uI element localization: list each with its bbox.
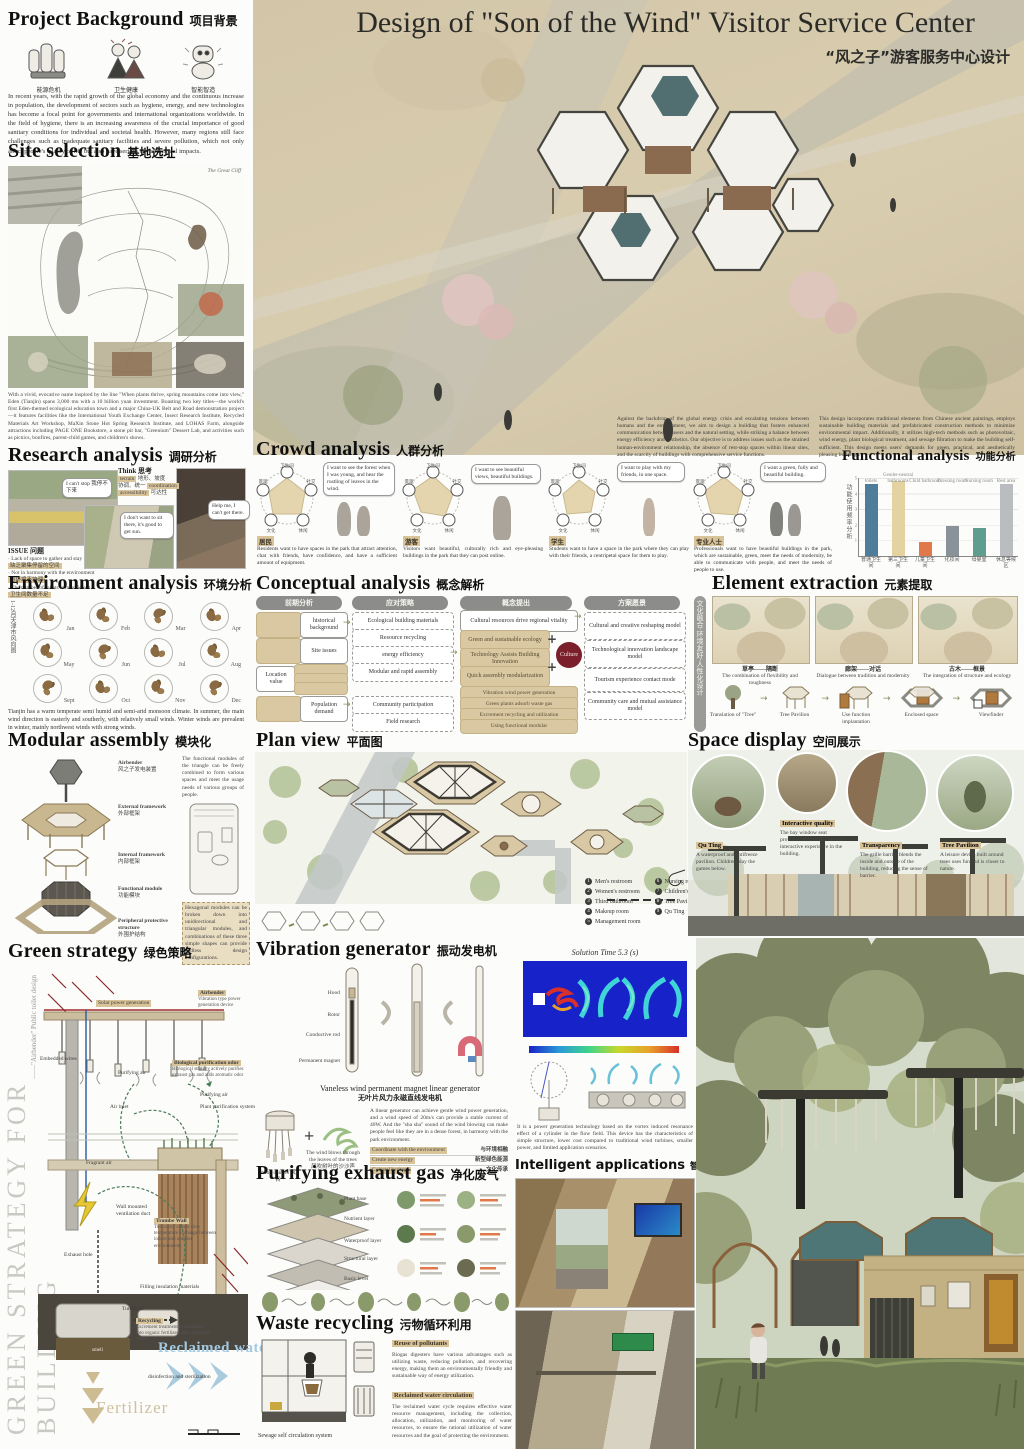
- purify-heading: Purifying exhaust gas净化废气: [256, 1162, 499, 1185]
- plan-heading: Plan view平面图: [256, 729, 383, 752]
- flow-box: Cultural resources drive regional vitali…: [460, 610, 578, 632]
- space-callout-transparency: TransparencyThe grille barrier blends th…: [860, 834, 930, 881]
- plus-sign: +: [547, 660, 557, 674]
- svg-text:文化: 文化: [704, 527, 713, 534]
- persona-tag: 学生: [549, 536, 566, 546]
- intelligent-photo-screen: [515, 1178, 695, 1308]
- wind-rose-mar: Mar: [131, 598, 187, 634]
- svg-text:+: +: [304, 1126, 314, 1146]
- think-keyword-accessibility: accessibility 可达性: [118, 490, 206, 497]
- heading-zh: 净化废气: [451, 1166, 499, 1183]
- wind-rose-oct: Oct: [76, 670, 132, 706]
- function-icon: [839, 684, 873, 710]
- environment-side-label: 1-12月天津市风向图: [8, 600, 17, 653]
- arrow-icon: →: [343, 618, 351, 628]
- legend-item: 5Management room: [585, 918, 641, 925]
- intelligent-photo-corridor: [515, 1310, 695, 1449]
- heading-zh: 污物循环利用: [400, 1316, 472, 1333]
- cfd-simulation-image: [523, 961, 687, 1037]
- element-steps: Translation of "Tree" → Tree Pavilion → …: [706, 684, 1022, 725]
- heading-en: Purifying exhaust gas: [256, 1162, 445, 1185]
- fa-bar: [865, 484, 878, 556]
- flow-box: Community care and mutual assistance mod…: [584, 692, 686, 720]
- arrow-icon: →: [760, 694, 768, 704]
- space-callout-circle-3: [846, 750, 928, 832]
- heading-en: Project Background: [8, 8, 184, 31]
- heading-zh: 功能分析: [976, 448, 1016, 463]
- arrow-icon: →: [343, 700, 351, 710]
- svg-text:文化: 文化: [559, 527, 568, 534]
- svg-text:景观: 景观: [696, 479, 705, 485]
- person-figure: [770, 502, 783, 536]
- green-section-drawing: [38, 964, 248, 1442]
- environment-heading: Environment analysis环境分析: [8, 572, 252, 595]
- modular-heading: Modular assembly模块化: [8, 729, 211, 752]
- green-label-fill: Filling insulation materials: [140, 1284, 199, 1291]
- waste-block-pollutants: Reuse of pollutants Biogas digesters hav…: [392, 1332, 512, 1381]
- flow-tan-box: Quick assembly modularization: [460, 666, 550, 687]
- research-bubble-2: I don't want to sit there, it's good to …: [120, 512, 174, 539]
- final-render: [696, 938, 1024, 1449]
- chart-y-ticks: 12345: [852, 478, 858, 556]
- heading-en: Research analysis: [8, 444, 163, 467]
- heading-zh: 模块化: [175, 733, 211, 750]
- sewage-diagram: [258, 1336, 378, 1428]
- svg-text:景观: 景观: [259, 479, 268, 485]
- site-body: With a vivid, evocative name inspired by…: [8, 392, 244, 442]
- viewfinder-icon: [968, 684, 1014, 710]
- painting-2: [815, 596, 913, 664]
- svg-text:休闲: 休闲: [299, 527, 308, 534]
- label-airbender: Airbender风之子发电装置: [118, 760, 157, 774]
- flow-col-header: 概念提出: [460, 596, 572, 610]
- space-callout-quting: Qu TingA waterproof and antifreeze pavil…: [696, 834, 766, 873]
- green-label-reclaimed: Reclaimed water: [158, 1340, 273, 1357]
- label-internal: Internal framework内部框架: [118, 852, 165, 866]
- legend-item: 3Third bathroom: [585, 898, 641, 905]
- label-peripheral: Peripheral protective structure外围护结构: [118, 918, 178, 939]
- heading-en: Plan view: [256, 729, 341, 752]
- svg-text:文化: 文化: [267, 527, 276, 534]
- persona-quote: I want a green, fully and beautiful buil…: [760, 462, 826, 482]
- svg-text:卫生间: 卫生间: [280, 462, 294, 469]
- issue-item: · Lack of space to gather and stay缺乏聚集停留…: [8, 556, 118, 570]
- green-label-purair2: Purifying air: [200, 1092, 228, 1099]
- tree-icon: [718, 684, 748, 710]
- svg-text:社交: 社交: [599, 478, 608, 485]
- svg-text:卫生间: 卫生间: [717, 462, 731, 469]
- heading-en: Waste recycling: [256, 1312, 394, 1335]
- functional-heading: Functional analysis功能分析: [842, 448, 1016, 465]
- wind-rose-icon: [89, 602, 118, 631]
- heading-zh: 环境分析: [204, 576, 252, 593]
- arrow-icon: →: [450, 648, 458, 658]
- space-heading: Space display空间展示: [688, 729, 861, 752]
- generator-caption: Vaneless wind permanent magnet linear ge…: [300, 1084, 500, 1103]
- hero-illustration: [253, 0, 1024, 455]
- wind-rose-jun: Jun: [76, 634, 132, 670]
- cfd-panel: Solution Time 5.3 (s) It is a power gene…: [515, 948, 695, 1160]
- vortex-schematic-left: [519, 1058, 581, 1122]
- enclosed-icon: [899, 684, 945, 710]
- legend-item: 4Makeup room: [585, 908, 641, 915]
- flow-box: Cultural and creative reshaping model: [584, 612, 686, 640]
- green-label-exhaust: Exhaust hole: [64, 1252, 93, 1259]
- wind-rose-icon: [139, 632, 179, 672]
- wind-rose-sept: Sept: [20, 670, 76, 706]
- wind-rose-feb: Feb: [76, 598, 132, 634]
- heading-en: Green strategy: [8, 940, 138, 963]
- flow-box: Modular and rapid assembly: [352, 663, 454, 682]
- persona-desc: Students want to have a space in the par…: [549, 546, 689, 560]
- persona-tag: 专业人士: [694, 536, 724, 546]
- exploded-axon-drawing: [10, 754, 122, 934]
- heading-zh: 基地选址: [127, 144, 175, 161]
- health-icon: [100, 38, 152, 82]
- wind-rose-grid: Jan Feb Mar Apr May Jun Jul Aug Sept Oct…: [20, 598, 242, 706]
- flow-box: Technological innovation landscape model: [584, 640, 686, 668]
- heading-zh: 平面图: [347, 733, 383, 750]
- step-tree: Translation of "Tree": [706, 684, 760, 719]
- persona-tag: 居民: [257, 536, 274, 546]
- green-label-duct: Wall mounted ventilation duct: [116, 1204, 168, 1218]
- svg-text:景观: 景观: [551, 479, 560, 485]
- vibration-paragraph: A linear generator can achieve gentle wi…: [370, 1108, 508, 1144]
- painting-3: [918, 596, 1018, 664]
- persona-students: 卫生间社交休闲文化景观 I want to play with my frien…: [547, 462, 693, 580]
- chart-column: Rest area休息等候区: [998, 478, 1014, 556]
- vibration-heading: Vibration generator振动发电机: [256, 938, 497, 961]
- conceptual-heading: Conceptual analysis概念解析: [256, 572, 484, 595]
- corridor-beam: [536, 1371, 656, 1375]
- part-label-rotor: Rotor: [282, 1012, 340, 1019]
- wind-rose-icon: [138, 596, 179, 637]
- hero-caption-left: Against the backdrop of the global energ…: [617, 416, 809, 459]
- flow-col-header: 方案愿景: [584, 596, 680, 610]
- heading-zh: 空间展示: [813, 733, 861, 750]
- space-callout-circle-4: [936, 754, 1014, 832]
- poster-title: Design of "Son of the Wind" Visitor Serv…: [313, 6, 1018, 40]
- person-figure: [337, 502, 351, 536]
- svg-text:休闲: 休闲: [591, 527, 600, 534]
- plus-sign: +: [547, 632, 557, 646]
- person-figure: [357, 506, 370, 536]
- layer-label-structural: Structural layer: [344, 1256, 378, 1263]
- space-callout-circle-1: [690, 754, 766, 830]
- radar-chart: 卫生间社交休闲文化景观: [547, 462, 611, 536]
- person-figure: [493, 496, 511, 540]
- project-background-heading: Project Background项目背景: [8, 8, 238, 31]
- painting-caption-2: 廊架——对话Dialogue between tradition and mod…: [815, 664, 911, 680]
- heading-en: Space display: [688, 729, 807, 752]
- chart-plot-area: 12345 toilets普通卫生间 Gender-neutral bathro…: [858, 478, 1018, 557]
- persona-desc: Visitors want beautiful, culturally rich…: [403, 546, 543, 560]
- heading-en: Functional analysis: [842, 448, 970, 465]
- svg-text:休闲: 休闲: [736, 527, 745, 534]
- label-external: External framework外部框架: [118, 804, 166, 818]
- svg-text:社交: 社交: [744, 478, 753, 485]
- svg-text:卫生间: 卫生间: [426, 462, 440, 469]
- heading-en: Intelligent applications: [515, 1158, 685, 1173]
- flow-tan-note: [256, 696, 302, 722]
- step-pavilion: Tree Pavilion: [768, 684, 822, 719]
- fa-bar: [946, 526, 959, 556]
- wind-rose-icon: [194, 596, 234, 636]
- arrow-icon: →: [953, 694, 961, 704]
- heading-zh: 人群分析: [396, 442, 444, 459]
- sewage-label: Sewage self circulation system: [258, 1432, 332, 1440]
- green-label-wires: Embedded wires: [40, 1056, 77, 1063]
- wind-rose-jul: Jul: [131, 634, 187, 670]
- energy-crisis-icon: [23, 38, 75, 82]
- crowd-heading: Crowd analysis人群分析: [256, 438, 444, 461]
- bathroom-unit-drawing: [186, 798, 242, 898]
- green-label-solar: Solar power generation: [96, 1000, 151, 1007]
- cfd-colorbar: [529, 1046, 679, 1053]
- purify-process-row: [258, 1286, 510, 1314]
- arrow-icon: →: [821, 694, 829, 704]
- conceptual-flow: 前期分析 应对策略 概念提出 方案愿景 historical backgroun…: [256, 596, 692, 726]
- element-heading: Element extraction元素提取: [712, 572, 932, 595]
- persona-quote: I want to play with my friends, in one s…: [617, 462, 685, 482]
- heading-zh: 调研分析: [169, 448, 217, 465]
- fa-bar: [892, 481, 905, 556]
- painting-1: [712, 596, 810, 664]
- wind-rose-icon: [194, 668, 235, 709]
- flow-box: Site issues: [300, 638, 348, 664]
- wind-rose-jan: Jan: [20, 598, 76, 634]
- chart-column: Gender-neutral bathrooms第三卫生间: [890, 478, 906, 556]
- background-icons: 能源危机 卫生健康 智能智造: [10, 38, 242, 95]
- icon-health: 卫生健康: [100, 38, 152, 95]
- wind-rose-icon: [83, 668, 123, 708]
- flow-box: Population demand: [300, 696, 348, 722]
- flow-tan-note: [256, 638, 302, 664]
- legend-item: 1Men's restroom: [585, 878, 641, 885]
- heading-en: Vibration generator: [256, 938, 431, 961]
- modular-note1: The functional modules of the triangle c…: [182, 756, 244, 799]
- part-label-magnet: Permanent magnet: [282, 1058, 340, 1065]
- research-think: Think 思考 terrain 地形、坡度 协调、统一 coordinatio…: [118, 466, 206, 497]
- heading-en: Element extraction: [712, 572, 878, 595]
- part-label-hood: Hood: [282, 990, 340, 997]
- research-heading: Research analysis调研分析: [8, 444, 217, 467]
- legend-item: 2Women's restroom: [585, 888, 641, 895]
- wind-rose-may: May: [20, 634, 76, 670]
- heading-en: Site selection: [8, 140, 121, 163]
- green-label-airinlet: Air inlet: [110, 1104, 128, 1111]
- radar-chart: 卫生间社交休闲文化景观: [401, 462, 465, 536]
- green-label-fertilizer: Fertilizer: [96, 1398, 168, 1418]
- plant-palette: [392, 1186, 512, 1286]
- green-sign: [612, 1333, 654, 1351]
- poster: Design of "Son of the Wind" Visitor Serv…: [0, 0, 1024, 1449]
- green-side-subtitle: ——"Airbender" Public toilet design: [30, 975, 38, 1079]
- persona-residents: 卫生间社交休闲文化景观 I want to see the forest whe…: [255, 462, 401, 580]
- doorway-view: [556, 1209, 608, 1289]
- radar-chart: 卫生间社交休闲文化景观: [255, 462, 319, 536]
- flow-tan-note: [294, 682, 348, 695]
- fa-bar: [919, 542, 932, 556]
- wind-rose-nov: Nov: [131, 670, 187, 706]
- conceptual-side-label: 文化融合·环境友好·人性化设计: [694, 596, 706, 732]
- wind-rose-icon: [83, 632, 124, 673]
- person-figure: [788, 504, 801, 536]
- chart-column: Dressing room化妆间: [944, 478, 960, 556]
- green-label-fragrant: Fragrant air: [86, 1160, 112, 1167]
- green-label-smell: smell: [92, 1348, 103, 1354]
- green-label-turbid: Turbid air: [122, 1306, 144, 1313]
- green-label-plantsys: Plant purification system: [200, 1104, 255, 1111]
- wind-rose-icon: [33, 638, 62, 667]
- research-bubble-1: I can't stop 我停不下来: [62, 478, 112, 498]
- issue-label: ISSUE 问题: [8, 546, 118, 556]
- flow-box: Tourism experience contact mode: [584, 668, 686, 692]
- arrow-icon: →: [574, 612, 582, 622]
- space-callout-treepavilion: Tree PavilionA leisure device built arou…: [940, 834, 1010, 873]
- heading-en: Crowd analysis: [256, 438, 390, 461]
- pavilion-icon: [778, 684, 812, 710]
- layer-label-plant: Plant base: [344, 1196, 366, 1203]
- svg-text:文化: 文化: [413, 527, 422, 534]
- svg-text:社交: 社交: [453, 478, 462, 485]
- person-figure: [643, 498, 655, 536]
- flow-tan-note: [256, 612, 302, 638]
- persona-desc: Residents want to have spaces in the par…: [257, 546, 397, 567]
- icon-smart: 智能智造: [177, 38, 229, 95]
- persona-quote: I want to see the forest when I was youn…: [323, 462, 395, 496]
- green-label-purair1: Purifying air: [118, 1070, 146, 1077]
- layer-label-waterproof: Waterproof layer: [344, 1238, 381, 1245]
- flow-col-header: 应对策略: [352, 596, 448, 610]
- green-heading: Green strategy绿色策略: [8, 940, 192, 963]
- svg-text:社交: 社交: [307, 478, 316, 485]
- heading-zh: 项目背景: [190, 12, 238, 29]
- persona-professionals: 卫生间社交休闲文化景观 I want a green, fully and be…: [692, 462, 836, 580]
- step-function: Use function implantation: [829, 684, 883, 725]
- painting-caption-3: 古木——框景The integration of structure and e…: [918, 664, 1016, 680]
- chart-column: toilets普通卫生间: [863, 478, 879, 556]
- wind-rose-icon: [200, 638, 229, 667]
- flow-box: historical background: [300, 612, 348, 638]
- fa-bar: [1000, 484, 1013, 556]
- icon-energy-crisis: 能源危机: [23, 38, 75, 95]
- label-functional: Functional module功能模块: [118, 886, 162, 900]
- space-display-panel: Qu TingA waterproof and antifreeze pavil…: [688, 750, 1024, 936]
- final-render-illustration: [696, 938, 1024, 1449]
- heading-en: Conceptual analysis: [256, 572, 430, 595]
- highlight-row: Coordinate with the environment与环境相融: [370, 1146, 508, 1156]
- chart-column: Nursing room母婴室: [971, 478, 987, 556]
- legend-col-1: 1Men's restroom 2Women's restroom 3Third…: [585, 878, 641, 928]
- persona-quote: I want to see beautiful views, beautiful…: [471, 464, 541, 484]
- vortex-schematic-right: [587, 1056, 687, 1116]
- smart-icon: [177, 38, 229, 82]
- poster-subtitle: “风之子”游客服务中心设计: [825, 46, 1010, 67]
- heading-zh: 元素提取: [884, 576, 932, 593]
- layer-label-basic: Basic level: [344, 1276, 368, 1283]
- radar-chart: 卫生间社交休闲文化景观: [692, 462, 756, 536]
- flow-tan-box: Using functional modular: [460, 719, 578, 734]
- heading-zh: 绿色策略: [144, 944, 192, 961]
- green-label-trombe: Trombe WallThe cavity causes slow temper…: [154, 1218, 218, 1250]
- svg-text:休闲: 休闲: [445, 527, 454, 534]
- arrow-icon: →: [883, 694, 891, 704]
- space-callout-interactive: Interactive qualityThe bay window seat p…: [780, 812, 846, 859]
- module-combination-diagrams: [256, 906, 406, 936]
- heading-en: Modular assembly: [8, 729, 169, 752]
- fa-bar: [973, 528, 986, 556]
- flow-col-header: 前期分析: [256, 596, 342, 610]
- wind-rose-icon: [144, 674, 173, 703]
- layer-label-nutrient: Nutrient layer: [344, 1216, 375, 1223]
- persona-desc: Professionals want to have beautiful bui…: [694, 546, 832, 575]
- svg-text:景观: 景观: [405, 479, 414, 485]
- chart-column: Child bathroom儿童卫生间: [917, 478, 933, 556]
- site-selection-heading: Site selection基地选址: [8, 140, 175, 163]
- step-enclosed: Enclosed space: [891, 684, 953, 719]
- waste-block-reclaimed: Reclaimed water circulation The reclaime…: [392, 1384, 512, 1440]
- site-map: The Great Cliff: [8, 166, 244, 388]
- flow-box: Location value: [256, 666, 296, 692]
- space-callout-circle-2: [776, 752, 838, 814]
- svg-text:卫生间: 卫生间: [572, 462, 586, 469]
- waste-heading: Waste recycling污物循环利用: [256, 1312, 472, 1335]
- heading-zh: 概念解析: [436, 576, 484, 593]
- site-map-label: The Great Cliff: [208, 168, 241, 174]
- research-bubble-3: Help me, I can't get there.: [208, 500, 250, 520]
- site-map-drawing: [8, 166, 244, 388]
- green-label-bio: Biological purification odorBiological s…: [172, 1060, 244, 1079]
- persona-tag: 游客: [403, 536, 420, 546]
- part-label-conductive: Conductive rod: [282, 1032, 340, 1039]
- wind-rose-apr: Apr: [187, 598, 243, 634]
- wind-rose-icon: [28, 596, 68, 636]
- wind-rose-aug: Aug: [187, 634, 243, 670]
- green-label-airbender: AirbenderVibration type power generation…: [198, 990, 244, 1009]
- heading-zh: 振动发电机: [437, 942, 497, 959]
- cfd-caption: It is a power generation technology base…: [517, 1124, 693, 1153]
- modular-note2: Hexagonal modules can be broken down int…: [182, 902, 250, 965]
- think-label: Think 思考: [118, 466, 206, 476]
- info-screen: [634, 1203, 682, 1237]
- wind-rose-dec: Dec: [187, 670, 243, 706]
- step-viewfinder: Viewfinder: [960, 684, 1022, 719]
- hero-render: Design of "Son of the Wind" Visitor Serv…: [253, 0, 1024, 455]
- persona-visitors: 卫生间社交休闲文化景观 I want to see beautiful view…: [401, 462, 547, 580]
- culture-circle: Culture: [556, 642, 582, 668]
- cfd-title: Solution Time 5.3 (s): [515, 948, 695, 957]
- heading-en: Environment analysis: [8, 572, 198, 595]
- wind-rose-icon: [27, 668, 68, 709]
- functional-bar-chart: 功能使用频率分析 12345 toilets普通卫生间 Gender-neutr…: [858, 478, 1018, 557]
- green-label-disinfect: disinfection and sterilization: [148, 1374, 211, 1381]
